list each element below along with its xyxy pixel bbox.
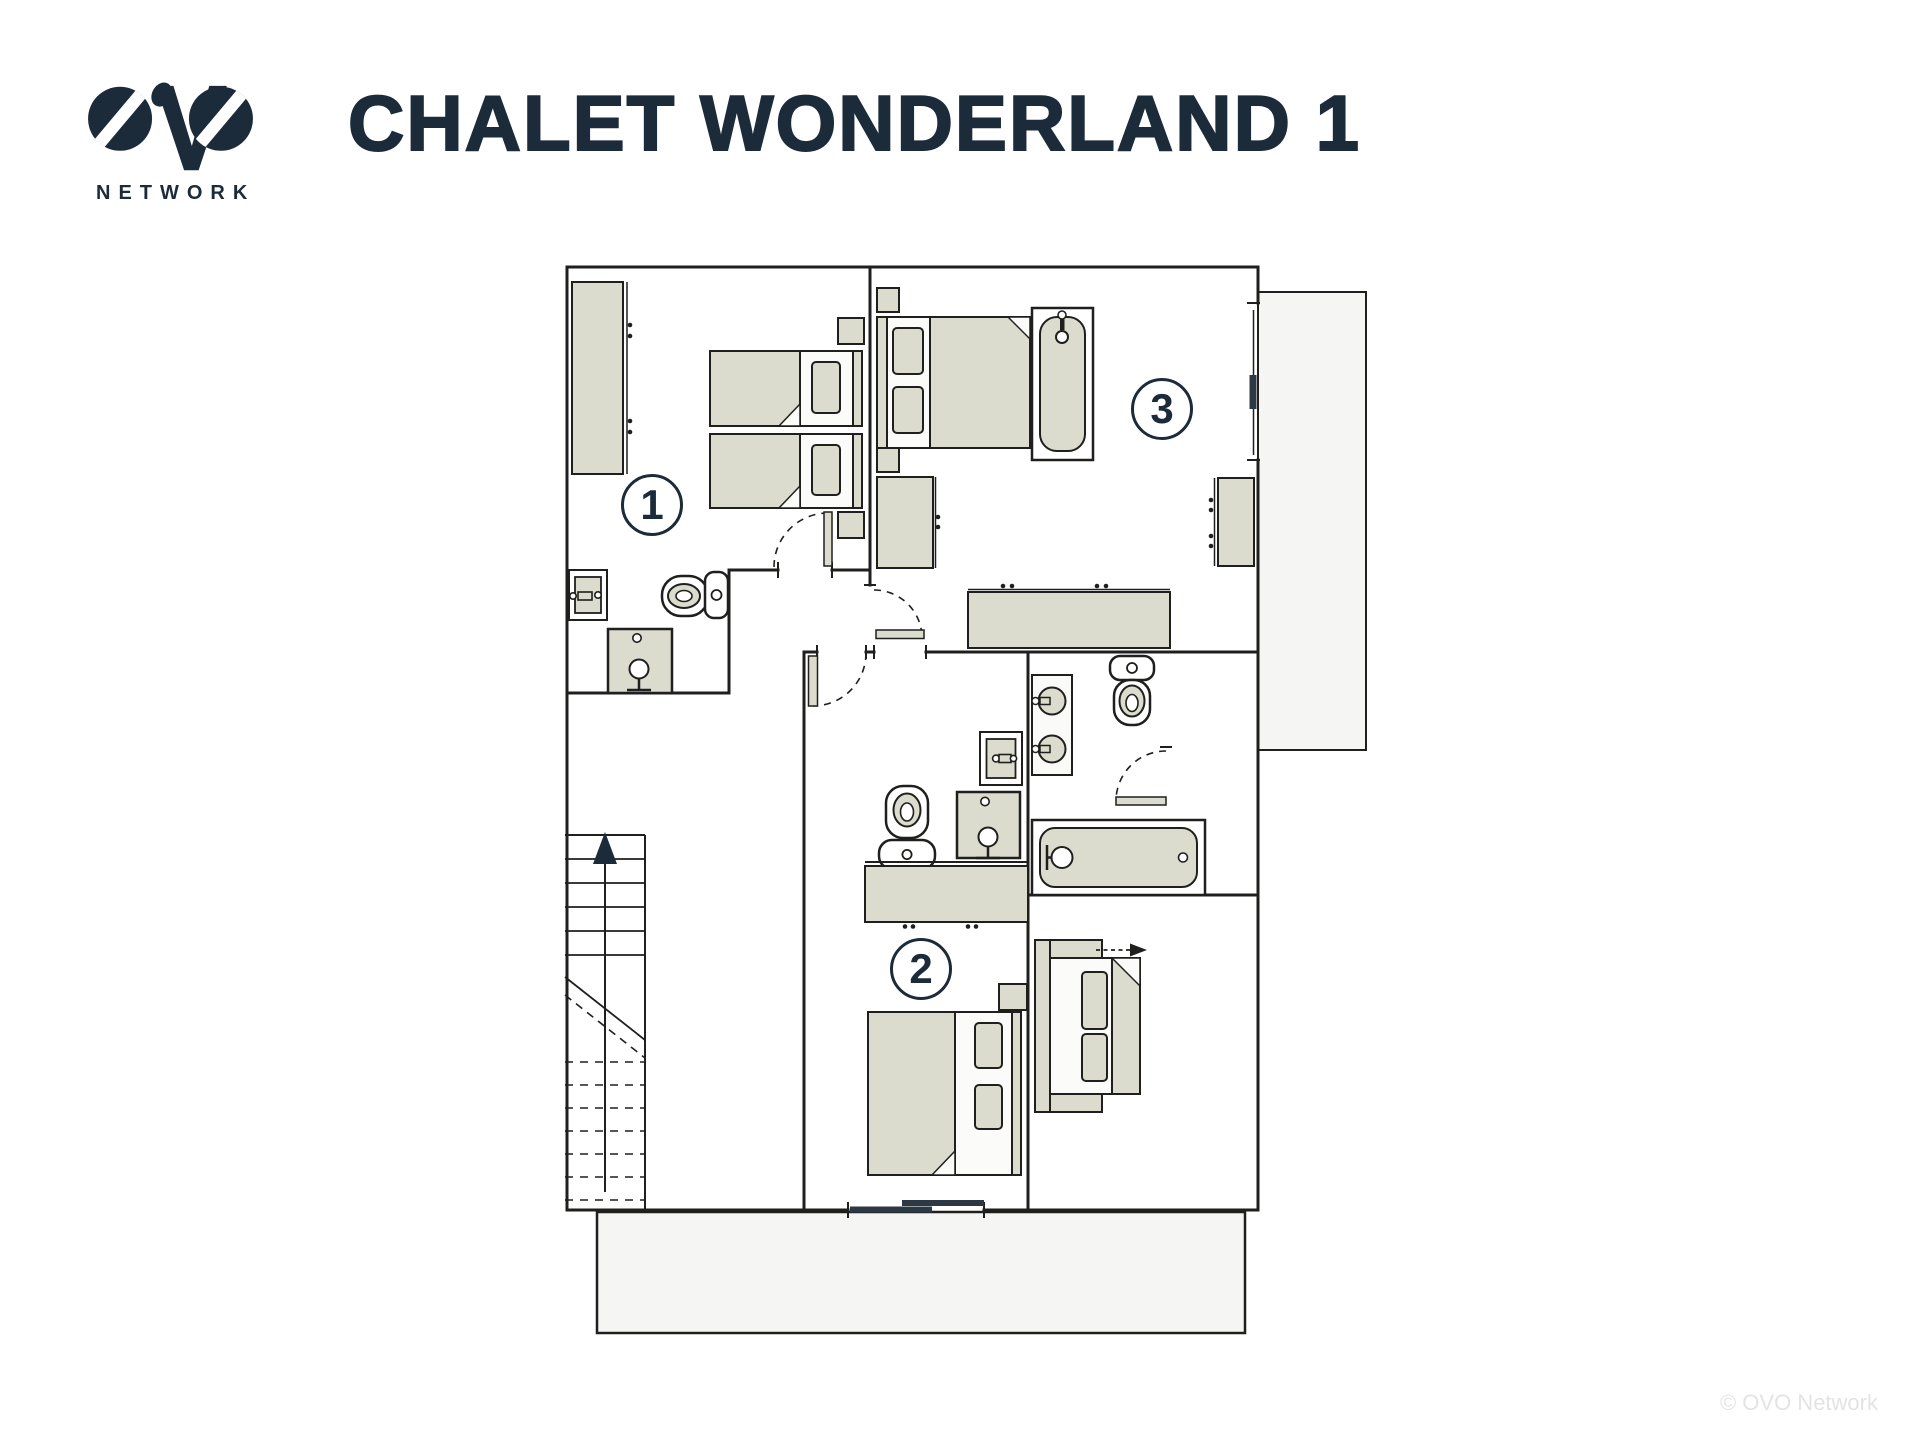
room-3-number: 3	[1150, 385, 1173, 433]
shower-icon	[957, 792, 1020, 858]
room-2-door-icon	[809, 653, 867, 706]
room-1	[572, 282, 864, 538]
floor-plan	[0, 0, 1920, 1440]
room-3-badge: 3	[1131, 378, 1193, 440]
console-long	[968, 584, 1170, 648]
shower-icon	[608, 629, 672, 693]
nightstand	[838, 512, 864, 538]
bathroom	[1032, 656, 1205, 895]
dresser	[865, 862, 1028, 929]
sliding-patio-door	[850, 1200, 984, 1213]
room-1-door-icon	[774, 512, 832, 567]
room-2-number: 2	[909, 945, 932, 993]
page: NETWORK CHALET WONDERLAND 1	[0, 0, 1920, 1440]
double-sink-vanity	[1032, 675, 1072, 775]
stairs-up-arrow-icon	[593, 832, 617, 864]
nightstand	[999, 984, 1027, 1010]
copyright-text: © OVO Network	[1720, 1390, 1878, 1416]
room-1-ensuite	[569, 570, 728, 693]
bathroom-door-icon	[1116, 751, 1166, 805]
twin-bed-bottom	[710, 434, 862, 508]
window-right-wall	[1250, 310, 1257, 455]
bathtub-icon	[1032, 820, 1205, 895]
balcony	[1258, 292, 1366, 750]
sofa-bed-room	[1035, 940, 1147, 1112]
lower-terrace	[597, 1212, 1245, 1333]
double-bed	[877, 317, 1030, 448]
nightstand	[838, 318, 864, 344]
bathtub-icon	[1032, 308, 1093, 460]
twin-bed-top	[710, 351, 862, 426]
room-1-number: 1	[640, 481, 663, 529]
toilet-icon	[1110, 656, 1154, 725]
console-right-wall	[1209, 478, 1254, 566]
sofa-bed	[1035, 940, 1140, 1112]
room-3	[877, 288, 1254, 648]
staircase	[565, 832, 645, 1210]
console-left	[877, 477, 940, 568]
toilet-icon	[879, 786, 935, 869]
room-3-door-icon	[874, 590, 924, 639]
nightstand	[877, 448, 899, 472]
double-bed	[868, 1012, 1021, 1175]
towel-radiator-icon	[569, 570, 607, 620]
pull-out-arrow-icon	[1096, 944, 1147, 957]
doors	[774, 512, 1166, 805]
room-2-badge: 2	[890, 938, 952, 1000]
nightstand	[877, 288, 899, 312]
wardrobe	[572, 282, 632, 474]
toilet-icon	[662, 572, 728, 618]
room-1-badge: 1	[621, 474, 683, 536]
towel-radiator-icon	[980, 732, 1022, 785]
